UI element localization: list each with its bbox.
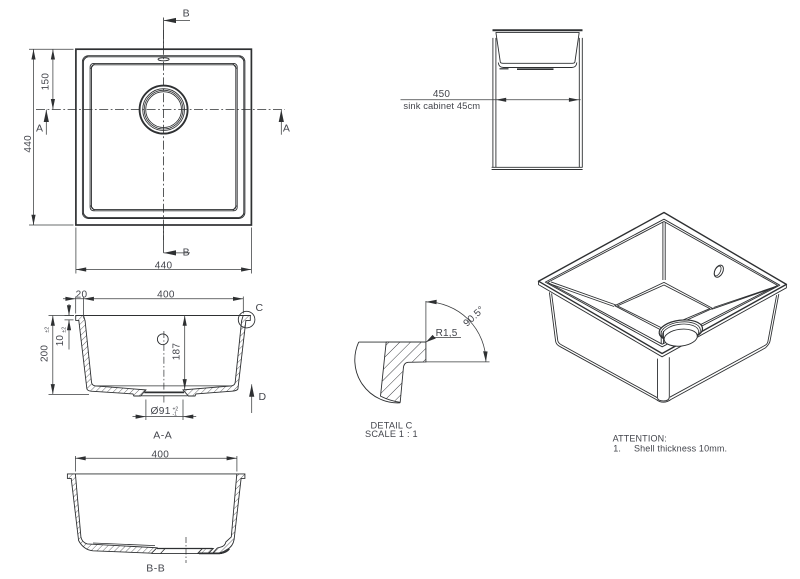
svg-text:200: 200 bbox=[39, 345, 50, 362]
svg-text:B: B bbox=[183, 8, 190, 20]
svg-text:Shell thickness 10mm.: Shell thickness 10mm. bbox=[634, 444, 727, 454]
svg-text:440: 440 bbox=[155, 261, 173, 272]
svg-text:-1: -1 bbox=[173, 412, 178, 418]
svg-text:±2: ±2 bbox=[61, 327, 67, 333]
svg-text:20: 20 bbox=[76, 289, 88, 300]
svg-text:Ø91: Ø91 bbox=[151, 406, 171, 417]
svg-text:R1,5: R1,5 bbox=[436, 328, 458, 339]
svg-text:150: 150 bbox=[40, 73, 51, 91]
svg-text:10: 10 bbox=[55, 335, 66, 347]
svg-text:B-B: B-B bbox=[146, 563, 165, 575]
svg-text:A-A: A-A bbox=[153, 429, 172, 441]
svg-text:1.: 1. bbox=[613, 444, 621, 454]
svg-text:A: A bbox=[36, 123, 43, 135]
svg-text:90.5°: 90.5° bbox=[462, 304, 487, 329]
svg-text:450: 450 bbox=[433, 89, 451, 100]
svg-text:SCALE 1 : 1: SCALE 1 : 1 bbox=[365, 429, 418, 439]
svg-text:ATTENTION:: ATTENTION: bbox=[613, 434, 667, 444]
svg-text:400: 400 bbox=[152, 449, 170, 460]
svg-text:B: B bbox=[183, 247, 190, 259]
svg-text:187: 187 bbox=[171, 343, 182, 361]
svg-text:400: 400 bbox=[157, 290, 175, 301]
svg-text:C: C bbox=[256, 302, 264, 314]
svg-text:±2: ±2 bbox=[44, 327, 50, 333]
svg-text:D: D bbox=[259, 391, 267, 403]
svg-text:440: 440 bbox=[23, 135, 34, 153]
svg-text:A: A bbox=[283, 123, 290, 135]
svg-text:sink cabinet 45cm: sink cabinet 45cm bbox=[403, 100, 480, 111]
